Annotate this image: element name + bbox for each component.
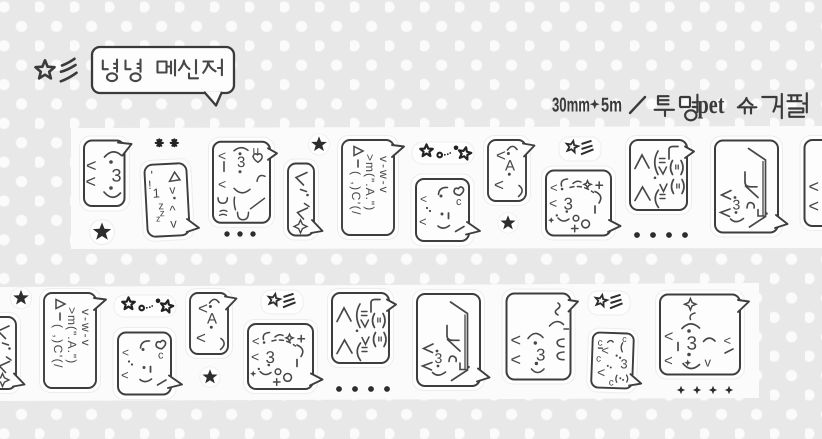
- svg-text:30mm: 30mm: [552, 95, 590, 117]
- svg-text:pet: pet: [698, 90, 725, 119]
- svg-text:5m: 5m: [601, 95, 622, 117]
